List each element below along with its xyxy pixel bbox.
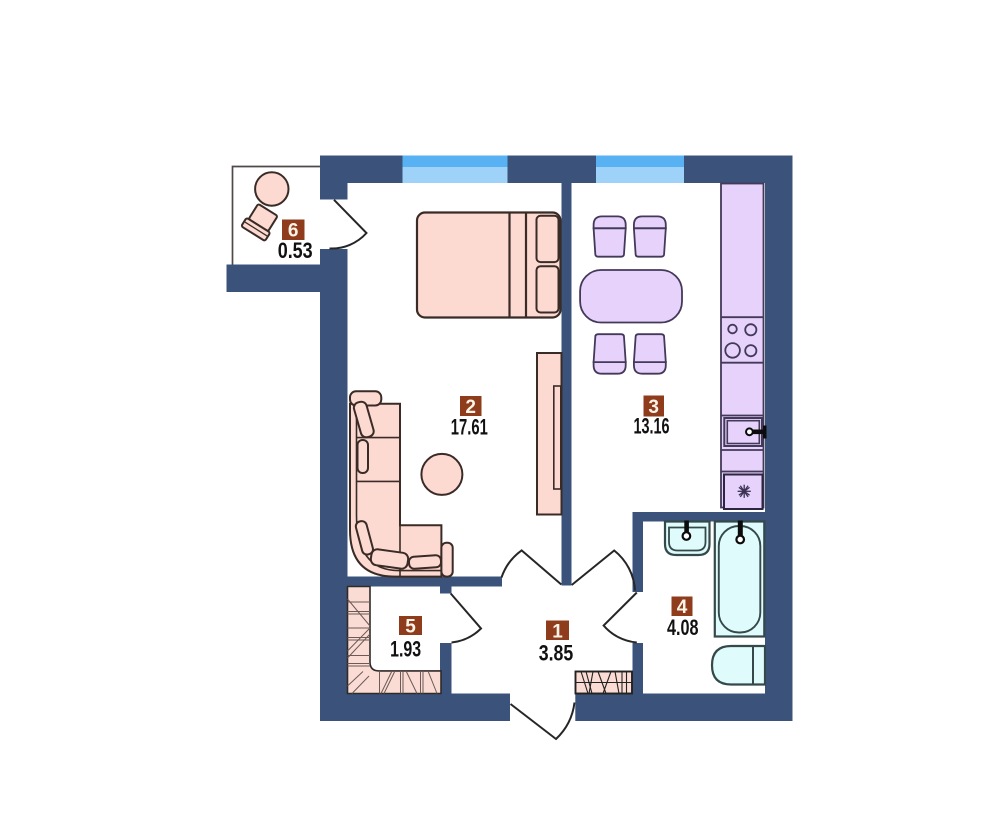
svg-text:17.61: 17.61 — [451, 415, 488, 440]
svg-text:5: 5 — [405, 617, 416, 638]
svg-text:1: 1 — [552, 621, 563, 642]
svg-text:1.93: 1.93 — [390, 636, 421, 661]
svg-text:3.85: 3.85 — [539, 641, 574, 666]
svg-text:13.16: 13.16 — [634, 414, 670, 439]
svg-text:4.08: 4.08 — [667, 615, 699, 640]
svg-text:0.53: 0.53 — [278, 238, 313, 263]
